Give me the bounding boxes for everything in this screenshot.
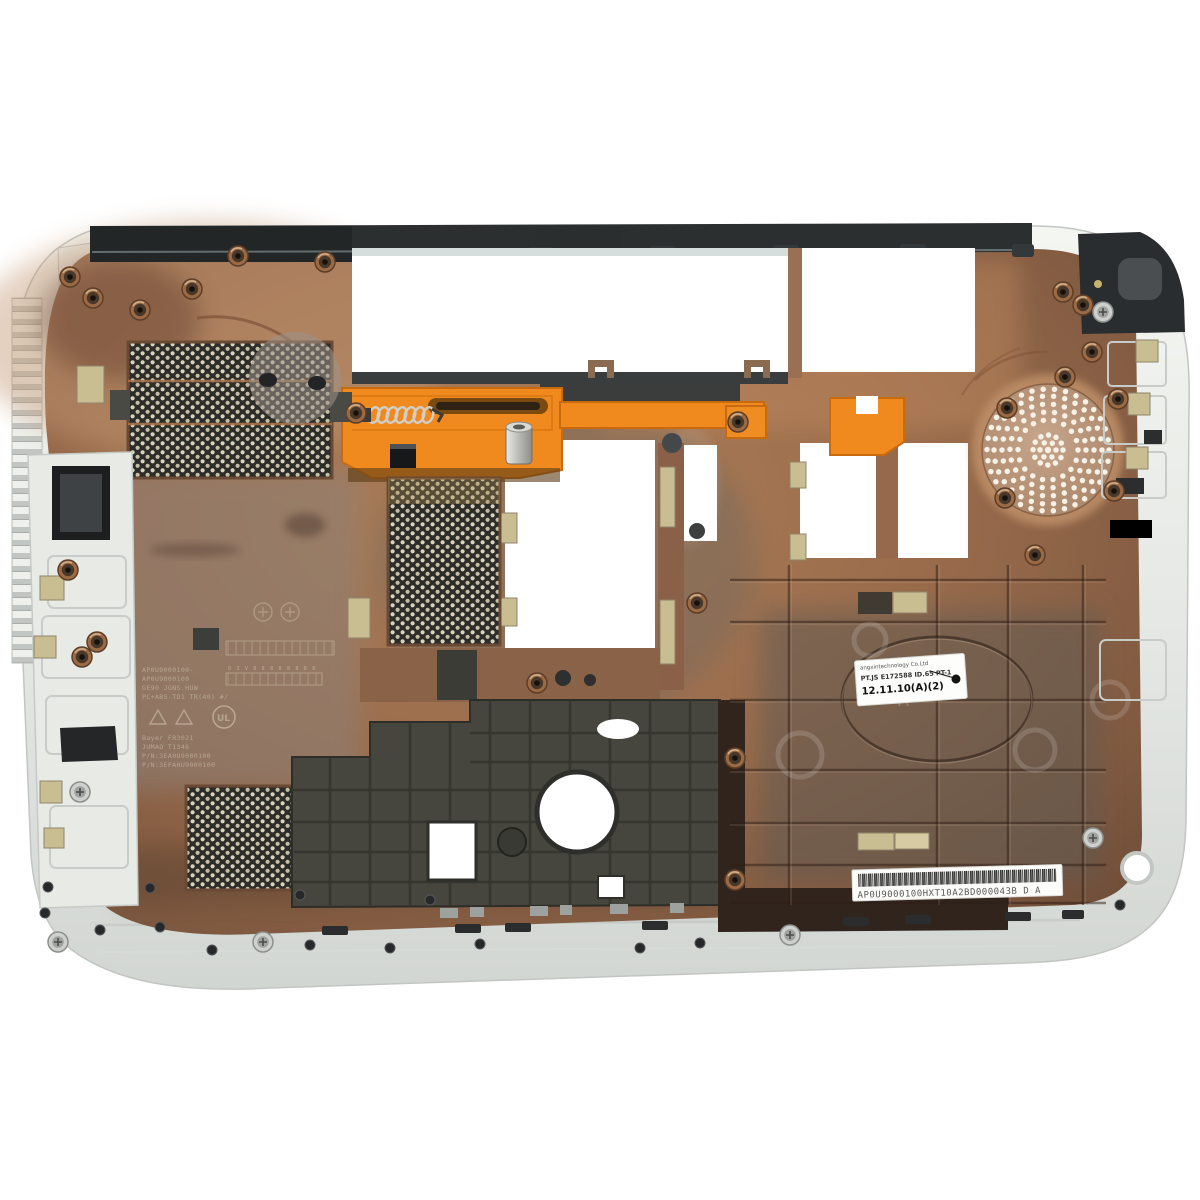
rubber-plug xyxy=(308,376,326,390)
molded-pocket xyxy=(193,628,219,650)
molded-line: GE90 JGNS.HUW xyxy=(142,684,198,692)
svg-text:UL: UL xyxy=(217,714,230,724)
laptop-bottom-case: A angxintechnology Co.Ltd PT.JS E172588 … xyxy=(0,0,1200,1200)
connector-block xyxy=(858,592,892,614)
left-structure-column xyxy=(28,452,138,908)
date-sticker: angxintechnology Co.Ltd PT.JS E172588 ID… xyxy=(854,653,967,706)
molded-line: PC+ABS-TD1 TR(40) #/ xyxy=(142,693,228,701)
rubber-plug xyxy=(259,373,277,387)
cooling-vent-bottom-left xyxy=(186,786,296,890)
molded-line: JUMAO T1346 xyxy=(142,743,189,751)
barcode-sticker: AP0U9000100HXT10A2BD000043B D A xyxy=(852,865,1063,901)
wall-slot xyxy=(1110,520,1152,538)
metal-standoff xyxy=(506,422,532,464)
molded-line: Bayer FR3021 xyxy=(142,734,194,742)
molded-line: AP0U9000100- xyxy=(142,666,194,674)
scale-digits: 0 3 V 8 8 8 8 8 8 8 8 xyxy=(228,666,316,672)
molded-line: P/N:3EFA0U9000100 xyxy=(142,761,215,769)
black-bracket xyxy=(60,726,118,762)
product-photo: A angxintechnology Co.Ltd PT.JS E172588 … xyxy=(0,0,1200,1200)
top-left-details xyxy=(249,332,341,424)
corner-hole xyxy=(1122,853,1152,883)
molded-line: P/N:3EA0U9000100 xyxy=(142,752,211,760)
molded-line: AP0U9000100 xyxy=(142,675,189,683)
screw-access-hole xyxy=(537,772,617,852)
cooling-vent-center xyxy=(388,478,500,645)
